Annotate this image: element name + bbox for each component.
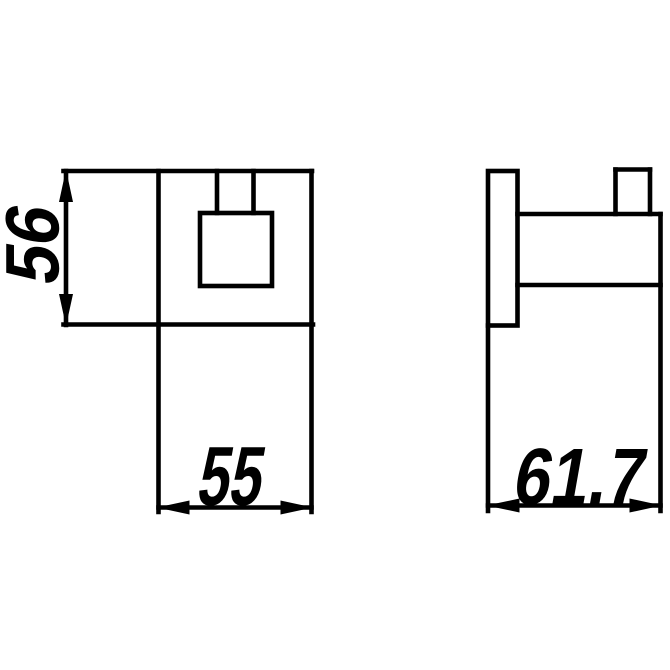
svg-text:56: 56 [0, 197, 75, 290]
svg-text:61.7: 61.7 [508, 433, 654, 522]
